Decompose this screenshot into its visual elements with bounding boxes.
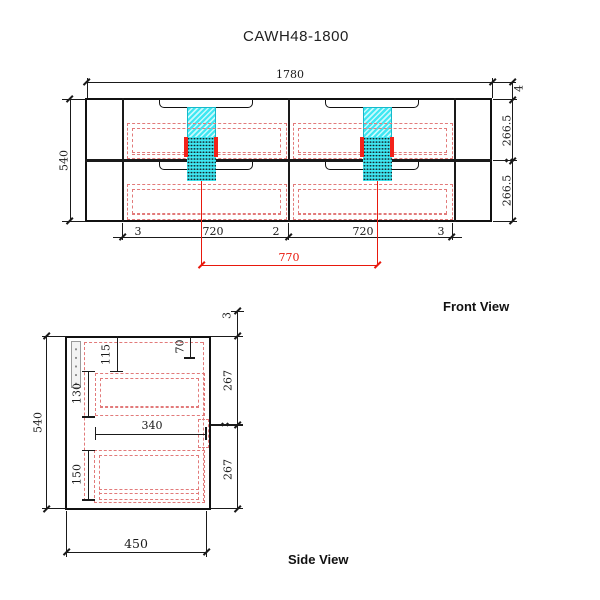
dim-b3-label: 2 xyxy=(266,225,286,238)
dim-b1-label: 3 xyxy=(128,225,148,238)
drawer-bottom-line xyxy=(99,489,199,490)
cutout-edge-bar xyxy=(214,137,218,157)
dim-endbar xyxy=(82,450,95,452)
drawer-bottom-line xyxy=(298,214,447,215)
drawer-bottom-line xyxy=(99,493,199,494)
dim-endbar xyxy=(82,416,95,418)
dim-450-line xyxy=(66,552,207,553)
dim-1780-label: 1780 xyxy=(270,68,310,81)
drawer-box-outline xyxy=(293,184,453,220)
drawer-box-outline xyxy=(95,373,205,416)
dim-540-side-label: 540 xyxy=(32,400,45,444)
dim-266-bottom-label: 266.5 xyxy=(501,168,514,212)
dim-break-dot xyxy=(225,423,229,427)
dim-endbar xyxy=(82,371,95,373)
drawer-bottom-line xyxy=(132,214,281,215)
drawer-bottom-line xyxy=(100,406,199,407)
dim-70-line xyxy=(190,336,191,358)
dim-endbar xyxy=(205,427,207,440)
dim-right-side-line xyxy=(237,311,238,510)
drawer-box-inner xyxy=(100,378,199,408)
dim-150-label: 150 xyxy=(71,452,84,496)
dim-115-label: 115 xyxy=(99,332,112,376)
dim-endbar xyxy=(95,427,97,440)
dim-266-top-label: 266.5 xyxy=(501,108,514,152)
dim-450-label: 450 xyxy=(111,537,161,550)
dim-break-dot xyxy=(504,158,508,162)
dim-267-bottom-label: 267 xyxy=(222,447,235,491)
dim-130-line xyxy=(88,371,89,417)
drawer-box-outline xyxy=(127,184,287,220)
dim-endbar xyxy=(82,499,95,501)
drawer-box-inner xyxy=(298,189,447,214)
dim-break-dot xyxy=(220,423,224,427)
technical-drawing: CAWH48-1800 1780 4 xyxy=(0,0,600,600)
cutout-edge-bar xyxy=(184,137,188,157)
dim-540-side-line xyxy=(46,336,47,510)
extension-line xyxy=(493,99,517,100)
basin-centerline-right xyxy=(377,181,379,266)
waste-cutout-left xyxy=(187,137,216,181)
front-mid-divider xyxy=(85,159,492,162)
dim-b5-label: 3 xyxy=(431,225,451,238)
dim-1780-line xyxy=(87,82,516,83)
dim-150-line xyxy=(88,450,89,500)
dim-115-line xyxy=(117,336,118,371)
dim-540-front-label: 540 xyxy=(58,138,71,182)
front-face-dashed-line xyxy=(84,342,85,501)
drawing-title: CAWH48-1800 xyxy=(243,28,349,45)
waste-cutout-right xyxy=(363,137,392,181)
dim-267-top-label: 267 xyxy=(222,358,235,402)
dim-3-label: 3 xyxy=(220,294,233,338)
dim-340-label: 340 xyxy=(132,419,172,432)
front-view-label: Front View xyxy=(443,299,509,314)
dim-770-label: 770 xyxy=(269,251,309,264)
basin-centerline-left xyxy=(201,181,203,266)
drawer-box-inner xyxy=(132,189,281,214)
dim-70-label: 70 xyxy=(173,325,186,369)
extension-line xyxy=(62,99,86,100)
dim-130-label: 130 xyxy=(71,372,84,416)
dim-770-line xyxy=(201,265,379,266)
dim-4-label: 4 xyxy=(513,67,526,111)
dim-b2-label: 720 xyxy=(193,225,233,238)
dim-340-line xyxy=(95,434,206,435)
side-view-label: Side View xyxy=(288,552,348,567)
cutout-edge-bar xyxy=(360,137,364,157)
cutout-edge-bar xyxy=(390,137,394,157)
drawer-box-outline xyxy=(94,450,206,503)
